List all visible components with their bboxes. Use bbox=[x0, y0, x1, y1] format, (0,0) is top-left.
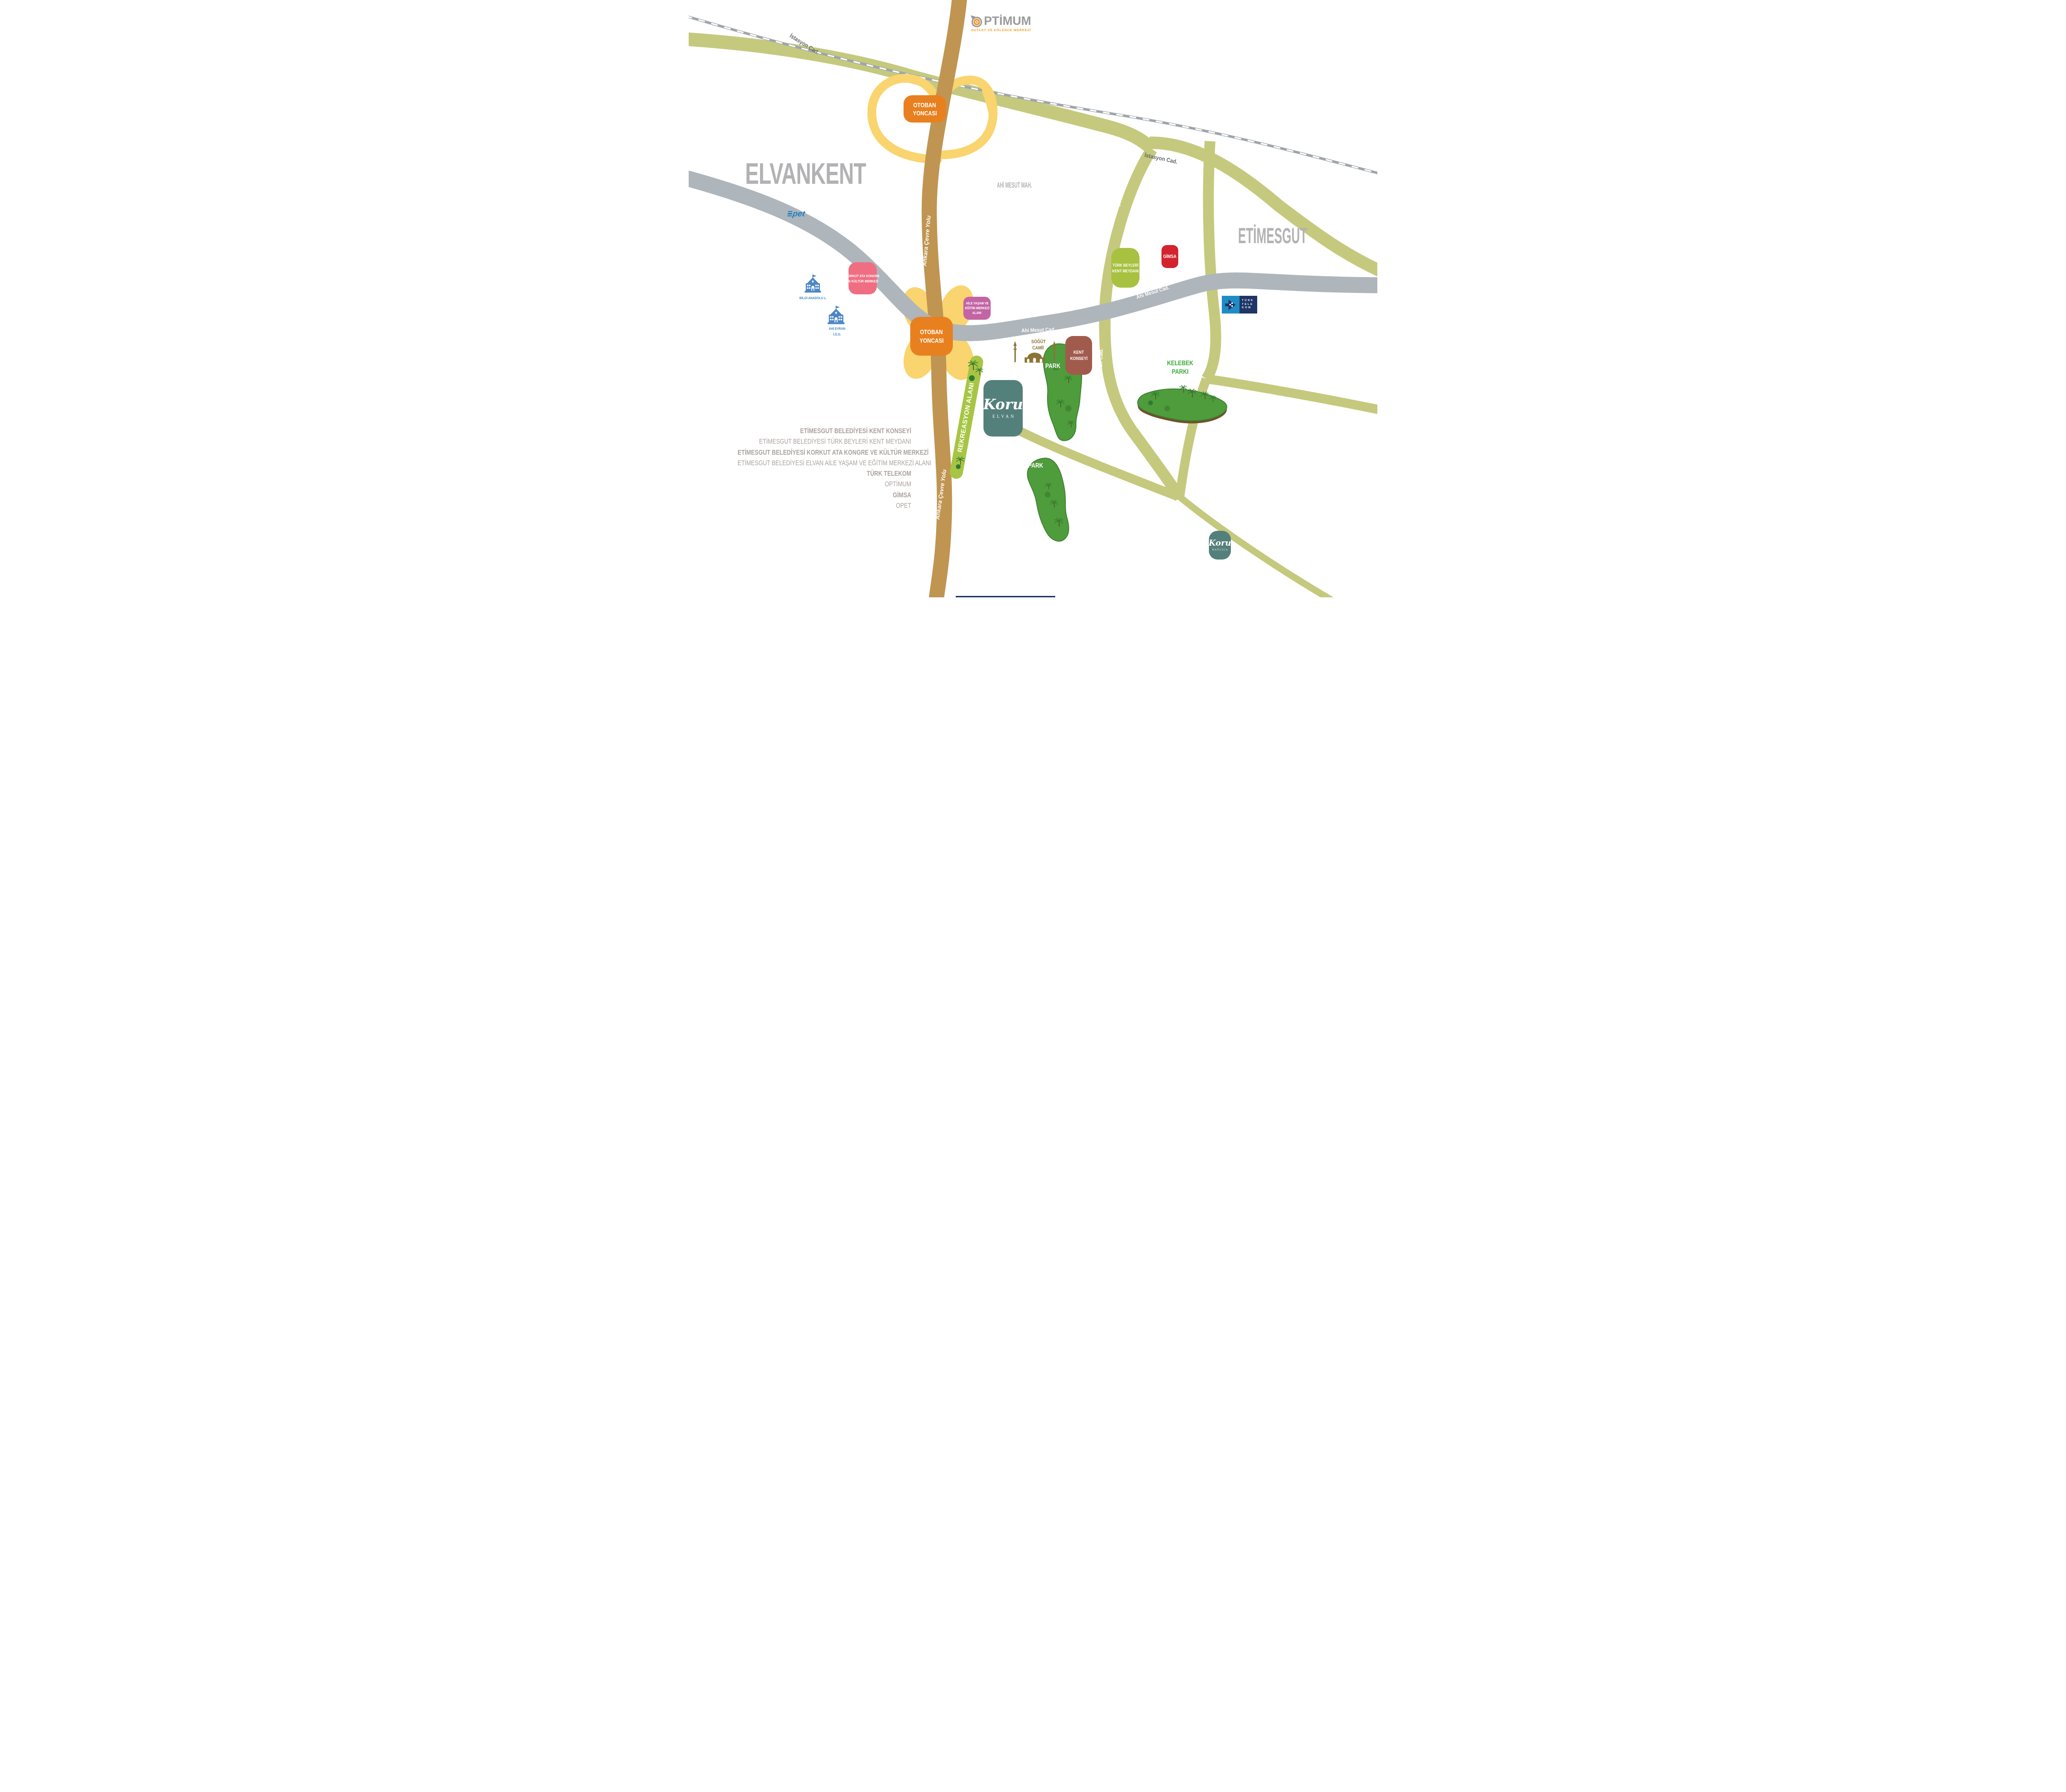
opet-logo: pet bbox=[787, 210, 806, 218]
tt-line1: TÜRK bbox=[1242, 299, 1257, 303]
region-ahi-mesut-mah: AHİ MESUT MAH. bbox=[997, 182, 1032, 190]
turk-telekom-logo: TÜRK TELE KOM bbox=[1222, 296, 1257, 314]
road-istasyon-east bbox=[1150, 143, 1377, 271]
badge-korkut-ata: KORKUT ATA KONGRE VE KÜLTÜR MERKEZİ bbox=[849, 262, 877, 294]
school-label-bilgi: BİLGİ ANADOLU L. bbox=[799, 297, 826, 300]
legend-item: ETİMESGUT BELEDİYESİ ELVAN AİLE YAŞAM VE… bbox=[737, 458, 911, 469]
legend-item: ETİMESGUT BELEDİYESİ KORKUT ATA KONGRE V… bbox=[737, 448, 911, 458]
legend-item: GİMSA bbox=[737, 490, 911, 501]
badge-otoban-yoncasi-south: OTOBAN YONCASI bbox=[910, 317, 953, 356]
koru-elvan-sub: ELVAN bbox=[993, 414, 1016, 419]
opet-text: pet bbox=[792, 210, 805, 218]
legend-item: TÜRK TELEKOM bbox=[737, 469, 911, 479]
tt-line3: KOM bbox=[1242, 306, 1257, 310]
badge-kent-konseyi: KENT KONSEYİ bbox=[1065, 336, 1092, 375]
optimum-title: PTİMUM bbox=[984, 15, 1031, 27]
park-label-1: PARK bbox=[1045, 362, 1061, 370]
koru-elvan-badge: Koru ELVAN bbox=[983, 380, 1023, 437]
school-label-ahi-evran-2: İ.Ö.O. bbox=[833, 333, 841, 336]
map-canvas: ELVANKENT AHİ MESUT MAH. ETİMESGUT İstas… bbox=[689, 0, 1377, 597]
koru-baglica-badge: Koru BAĞLICA bbox=[1209, 531, 1231, 560]
legend: ETİMESGUT BELEDİYESİ KENT KONSEYİ ETİMES… bbox=[737, 426, 911, 511]
road-istasyon bbox=[689, 39, 1152, 149]
koru-baglica-script: Koru bbox=[1208, 539, 1231, 548]
kelebek-parki-label-1: KELEBEK bbox=[1167, 359, 1194, 367]
road-branch-east bbox=[1206, 379, 1377, 410]
park-blob-2 bbox=[1027, 458, 1069, 541]
legend-item: ETİMESGUT BELEDİYESİ KENT KONSEYİ bbox=[737, 426, 911, 437]
road-label-ahi-mesut-center: Ahi Mesut Cad. bbox=[1021, 327, 1056, 334]
school-icon-ahi-evran bbox=[828, 306, 845, 324]
park-label-2: PARK bbox=[1028, 461, 1043, 469]
opet-bars-icon bbox=[787, 211, 793, 216]
legend-item: OPET bbox=[737, 501, 911, 511]
koru-baglica-sub: BAĞLICA bbox=[1212, 549, 1228, 551]
tt-line2: TELE bbox=[1242, 303, 1257, 307]
koru-elvan-script: Koru bbox=[983, 398, 1023, 412]
region-etimesgut: ETİMESGUT bbox=[1238, 225, 1307, 246]
optimum-logo: PTİMUM OUTLET VE EĞLENCE MERKEZİ bbox=[970, 15, 1031, 32]
badge-aile-yasam: AİLE YAŞAM VE EĞİTİM MERKEZİ ALANI bbox=[963, 297, 991, 320]
road-ahi-evran-east bbox=[1206, 141, 1216, 379]
badge-otoban-yoncasi-north: OTOBAN YONCASI bbox=[904, 95, 946, 123]
school-icon-bilgi bbox=[804, 274, 821, 292]
mosque-label-1: SÖĞÜT bbox=[1031, 339, 1046, 345]
school-label-ahi-evran-1: AHİ EVRAN bbox=[829, 327, 846, 331]
badge-turk-beyleri: TÜRK BEYLERİ KENT MEYDANI bbox=[1111, 248, 1139, 288]
badge-gimsa: GİMSA bbox=[1161, 245, 1178, 268]
mosque-label-2: CAMİİ bbox=[1032, 346, 1044, 351]
bottom-edge-mark bbox=[956, 596, 1055, 597]
region-elvankent: ELVANKENT bbox=[745, 159, 866, 189]
optimum-tagline: OUTLET VE EĞLENCE MERKEZİ bbox=[971, 29, 1031, 32]
legend-item: ETİMESGUT BELEDİYESİ TÜRK BEYLERİ KENT M… bbox=[737, 437, 911, 447]
optimum-target-icon bbox=[970, 15, 984, 28]
turk-telekom-arrow-icon bbox=[1222, 296, 1240, 314]
legend-item: OPTİMUM bbox=[737, 479, 911, 490]
kelebek-parki-label-2: PARKI bbox=[1172, 368, 1189, 375]
